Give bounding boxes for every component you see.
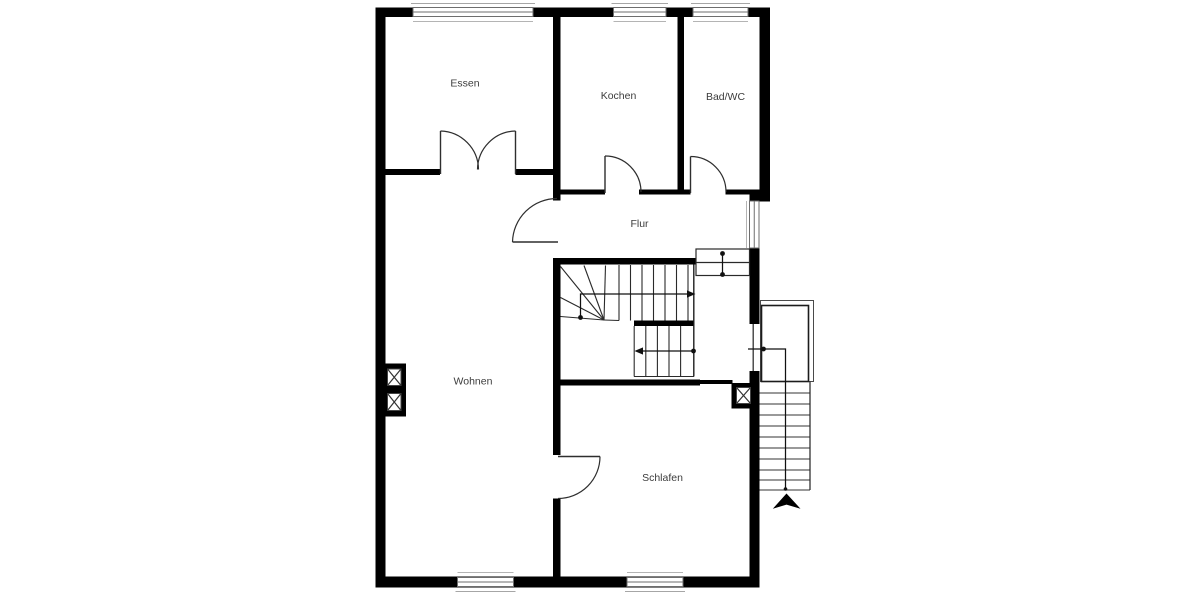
- svg-text:Wohnen: Wohnen: [454, 375, 493, 387]
- svg-text:Schlafen: Schlafen: [642, 472, 683, 484]
- svg-text:Flur: Flur: [630, 218, 649, 230]
- svg-text:Essen: Essen: [450, 78, 479, 90]
- svg-text:Kochen: Kochen: [601, 90, 637, 102]
- svg-text:Bad/WC: Bad/WC: [706, 91, 746, 103]
